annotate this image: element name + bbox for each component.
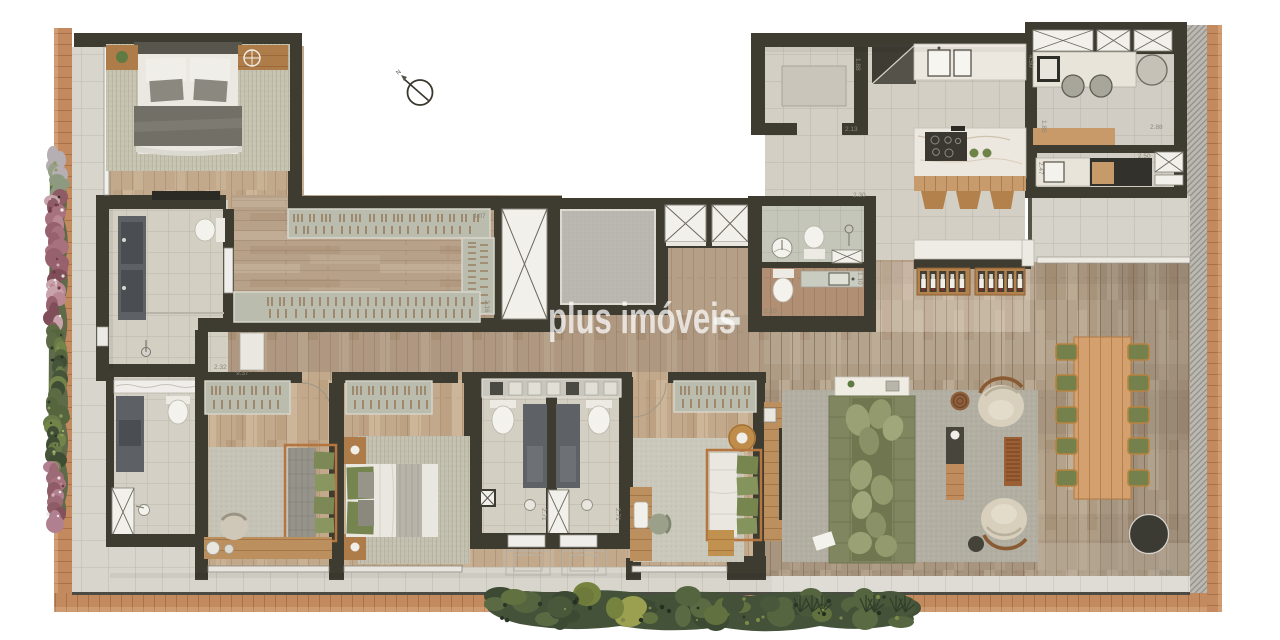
svg-text:9.05: 9.05	[1160, 570, 1173, 577]
svg-text:2.88: 2.88	[1150, 124, 1163, 131]
svg-text:1.88: 1.88	[854, 58, 861, 71]
svg-text:1.85: 1.85	[1040, 120, 1047, 133]
svg-text:2.71: 2.71	[614, 508, 621, 521]
svg-text:plus imóveis: plus imóveis	[548, 294, 736, 343]
svg-text:2.30: 2.30	[853, 192, 866, 199]
svg-text:9.37: 9.37	[236, 370, 249, 377]
svg-text:2.10: 2.10	[764, 308, 777, 315]
svg-text:2.13: 2.13	[845, 126, 858, 133]
svg-text:2.16: 2.16	[483, 300, 490, 313]
svg-text:2.32: 2.32	[214, 364, 227, 371]
svg-text:1.10: 1.10	[856, 272, 863, 285]
svg-text:2.50: 2.50	[1138, 153, 1151, 160]
svg-text:2.71: 2.71	[540, 508, 547, 521]
svg-text:4.50: 4.50	[1027, 55, 1034, 68]
svg-text:4.07: 4.07	[473, 213, 486, 220]
svg-text:2.47: 2.47	[1037, 162, 1044, 175]
